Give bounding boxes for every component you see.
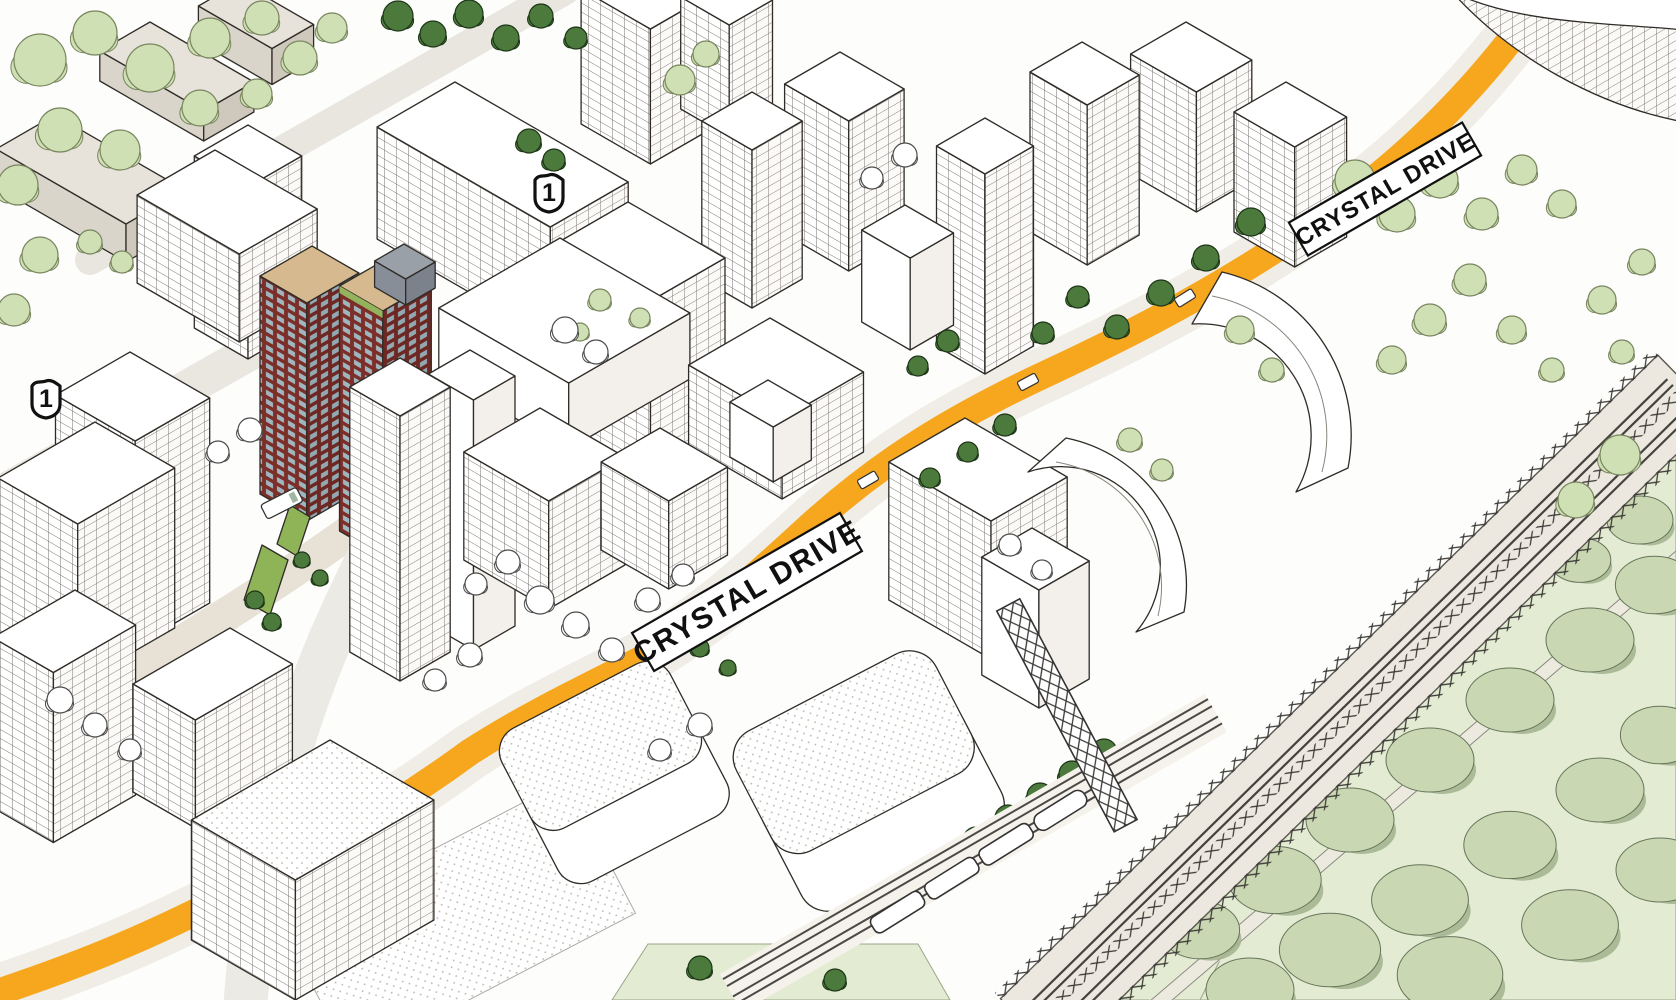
tree <box>0 165 39 205</box>
tree <box>0 294 31 326</box>
building <box>862 205 954 350</box>
route-1-shield-upper: 1 <box>535 174 563 212</box>
illustrated-map: CRYSTAL DRIVE CRYSTAL DRIVE 1 1 <box>0 0 1676 1000</box>
tree <box>245 591 264 609</box>
building <box>350 358 450 681</box>
tree <box>293 552 310 568</box>
tree <box>311 570 328 586</box>
building <box>0 590 136 843</box>
building <box>1030 42 1139 265</box>
route-1-shield-left: 1 <box>32 380 60 418</box>
tree <box>719 660 736 676</box>
tree <box>262 613 281 631</box>
route-1-shield-upper-number: 1 <box>542 179 556 207</box>
route-1-shield-left-number: 1 <box>39 385 53 413</box>
map-canvas: CRYSTAL DRIVE CRYSTAL DRIVE 1 1 <box>0 0 1676 1000</box>
